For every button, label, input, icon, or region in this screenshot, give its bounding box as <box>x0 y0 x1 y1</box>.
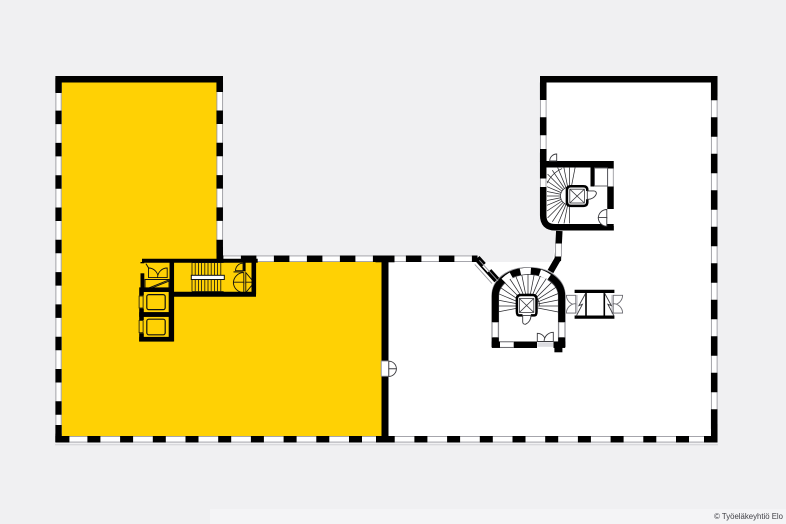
svg-text:© Työeläkeyhtiö Elo: © Työeläkeyhtiö Elo <box>714 512 784 521</box>
